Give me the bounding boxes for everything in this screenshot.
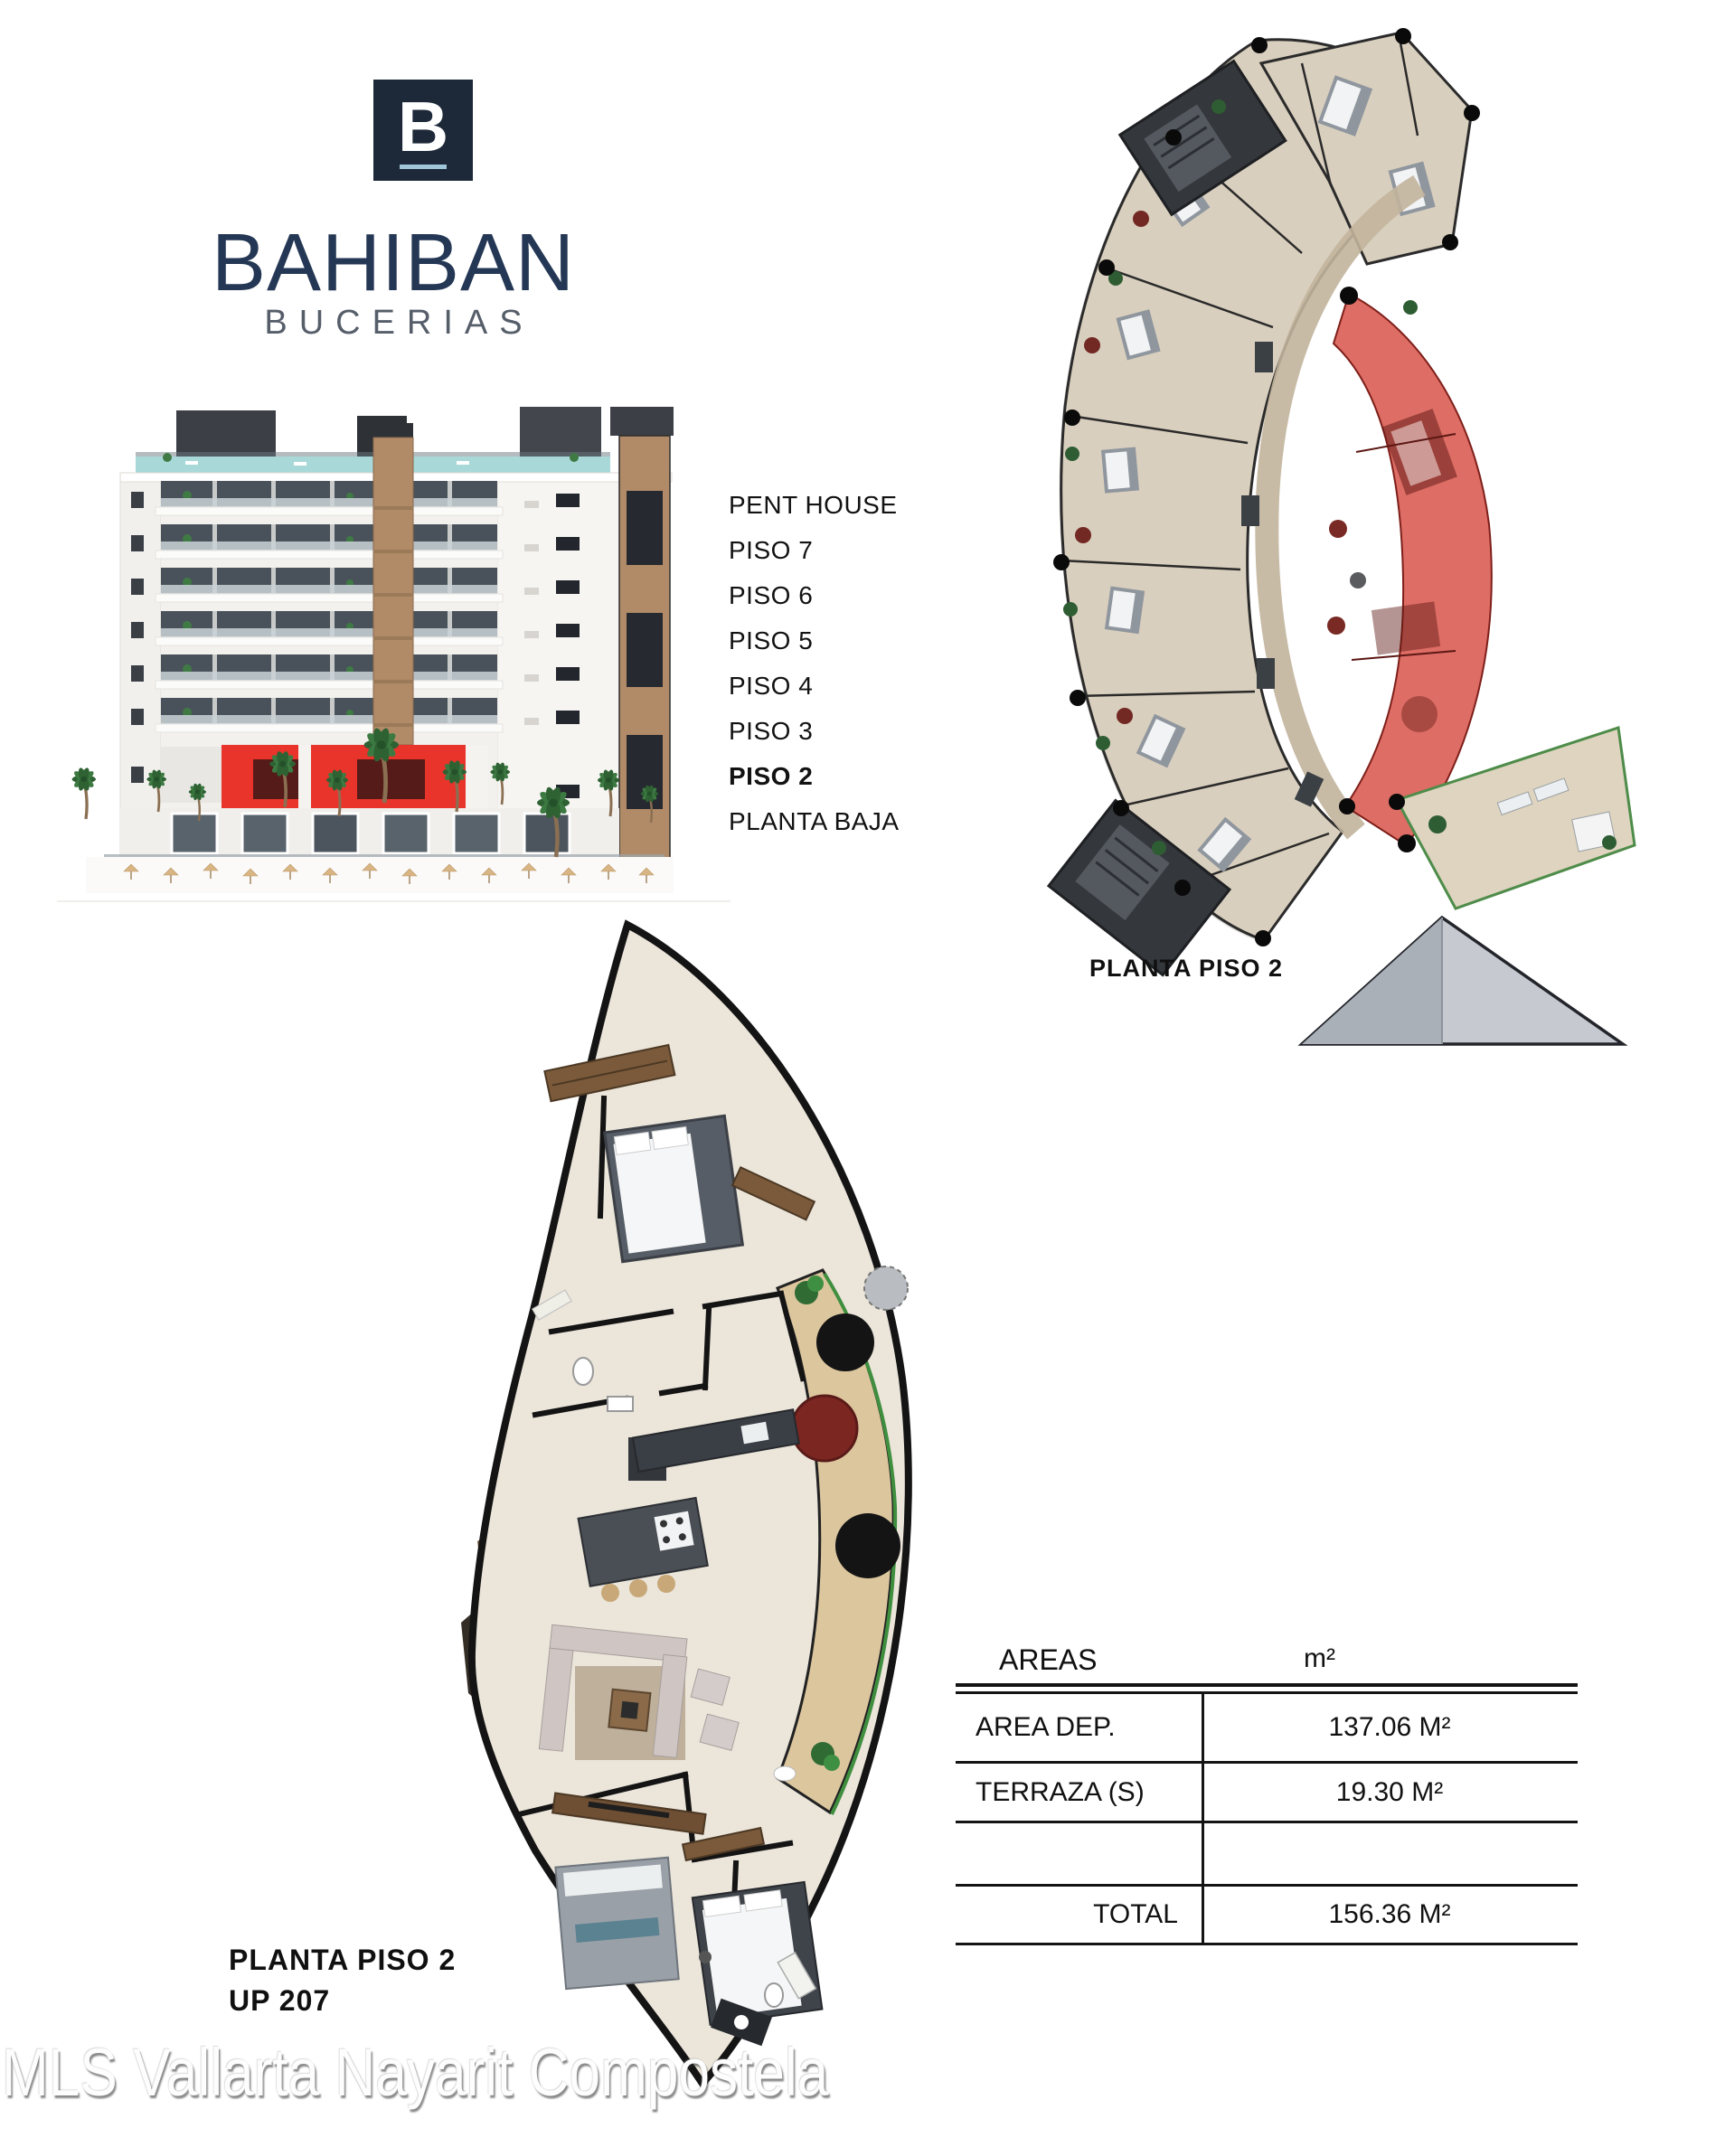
areas-title: AREAS <box>999 1643 1097 1677</box>
floor-plan-overview-render <box>1031 27 1645 1058</box>
row-label: TERRAZA (S) <box>956 1777 1202 1808</box>
floor-label: PENT HOUSE <box>729 483 982 528</box>
row-label: AREA DEP. <box>956 1712 1202 1743</box>
floor-label: PISO 5 <box>729 618 982 664</box>
row-value: 156.36 M² <box>1202 1899 1578 1930</box>
floor-label: PLANTA BAJA <box>729 799 982 844</box>
section-divider <box>57 900 731 902</box>
table-double-rule-top <box>956 1683 1578 1687</box>
unit-plan-caption-line1: PLANTA PISO 2 <box>229 1940 456 1981</box>
floor-label: PISO 4 <box>729 664 982 709</box>
building-elevation-render <box>68 405 683 893</box>
table-row-total: TOTAL 156.36 M² <box>956 1887 1578 1945</box>
floor-label: PISO 7 <box>729 528 982 573</box>
floor-label: PISO 6 <box>729 573 982 618</box>
areas-table-header: AREAS m² <box>956 1638 1578 1683</box>
table-row: AREA DEP. 137.06 M² <box>956 1694 1578 1764</box>
watermark-text: MLS Vallarta Nayarit Compostela <box>2 2034 828 2111</box>
unit-plan-caption-line2: UP 207 <box>229 1981 456 2021</box>
brand-logo-icon: B <box>373 80 473 181</box>
brand-name: BAHIBAN <box>154 217 633 310</box>
unit-plan-caption: PLANTA PISO 2 UP 207 <box>229 1940 456 2021</box>
row-value: 137.06 M² <box>1202 1712 1578 1743</box>
row-value: 19.30 M² <box>1202 1777 1578 1808</box>
floor-label-highlighted: PISO 2 <box>729 754 982 799</box>
table-column-divider <box>1202 1694 1204 1945</box>
areas-table: AREAS m² AREA DEP. 137.06 M² TERRAZA (S)… <box>956 1638 1578 1945</box>
areas-unit-header: m² <box>1304 1643 1335 1674</box>
logo-letter: B <box>398 91 448 162</box>
table-row: TERRAZA (S) 19.30 M² <box>956 1764 1578 1823</box>
row-label: TOTAL <box>956 1899 1202 1930</box>
logo-underline <box>400 165 447 169</box>
areas-table-body: AREA DEP. 137.06 M² TERRAZA (S) 19.30 M²… <box>956 1694 1578 1945</box>
overview-plan-caption: PLANTA PISO 2 <box>1089 955 1283 983</box>
floor-list: PENT HOUSE PISO 7 PISO 6 PISO 5 PISO 4 P… <box>729 483 982 844</box>
floor-label: PISO 3 <box>729 709 982 754</box>
brand-subtitle: BUCERIAS <box>154 304 633 343</box>
unit-floor-plan-render <box>398 909 940 2111</box>
brochure-page: B BAHIBAN BUCERIAS <box>0 0 1725 2156</box>
table-row-empty <box>956 1823 1578 1887</box>
